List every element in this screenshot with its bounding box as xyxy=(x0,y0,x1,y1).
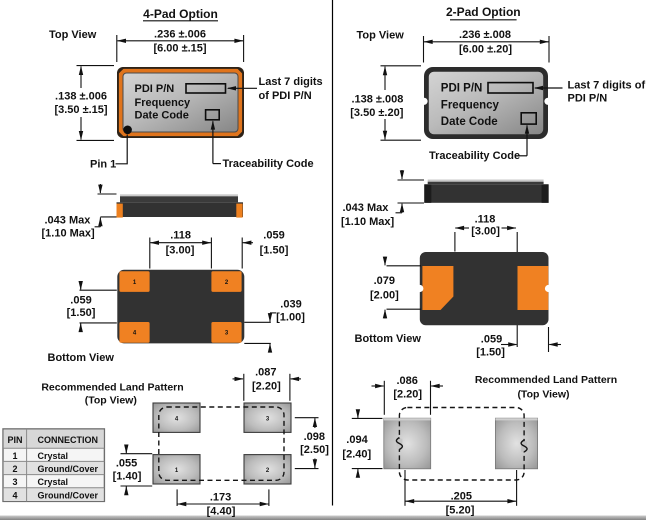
svg-text:Ground/Cover: Ground/Cover xyxy=(38,464,99,474)
svg-text:PIN: PIN xyxy=(7,435,22,445)
svg-text:.098: .098 xyxy=(304,431,325,443)
svg-text:[1.10 Max]: [1.10 Max] xyxy=(42,227,96,239)
svg-text:4-Pad Option: 4-Pad Option xyxy=(143,7,218,21)
svg-text:[1.50]: [1.50] xyxy=(260,244,289,256)
svg-text:.094: .094 xyxy=(346,434,368,446)
svg-text:2: 2 xyxy=(12,464,17,474)
svg-text:1: 1 xyxy=(12,451,17,461)
svg-text:4: 4 xyxy=(12,490,17,500)
svg-text:[1.00]: [1.00] xyxy=(276,312,305,324)
svg-text:[1.50]: [1.50] xyxy=(476,347,505,359)
svg-text:.059: .059 xyxy=(263,229,284,241)
svg-text:[1.40]: [1.40] xyxy=(113,471,142,483)
svg-text:Date Code: Date Code xyxy=(135,110,189,122)
svg-text:CONNECTION: CONNECTION xyxy=(38,435,99,445)
svg-text:[4.40]: [4.40] xyxy=(207,506,236,518)
svg-text:Bottom View: Bottom View xyxy=(355,333,422,345)
svg-text:Top View: Top View xyxy=(357,30,405,42)
svg-text:Recommended Land Pattern: Recommended Land Pattern xyxy=(475,374,617,386)
svg-text:[2.20]: [2.20] xyxy=(252,381,281,393)
svg-text:Crystal: Crystal xyxy=(38,451,69,461)
svg-text:[2.50]: [2.50] xyxy=(300,444,329,456)
svg-text:.236 ±.006: .236 ±.006 xyxy=(154,29,206,41)
svg-text:.086: .086 xyxy=(396,375,417,387)
svg-text:(Top View): (Top View) xyxy=(85,394,137,406)
svg-text:.118: .118 xyxy=(170,229,191,241)
svg-text:.055: .055 xyxy=(116,458,137,470)
svg-text:[3.50 ±.20]: [3.50 ±.20] xyxy=(350,107,403,119)
svg-text:.138 ±.008: .138 ±.008 xyxy=(351,93,403,105)
svg-text:PDI P/N: PDI P/N xyxy=(441,82,483,94)
svg-text:Ground/Cover: Ground/Cover xyxy=(38,490,99,500)
svg-text:3: 3 xyxy=(12,477,17,487)
svg-text:.138 ±.006: .138 ±.006 xyxy=(55,90,107,102)
svg-text:of PDI P/N: of PDI P/N xyxy=(259,90,312,102)
svg-text:Bottom View: Bottom View xyxy=(48,352,115,364)
svg-text:Recommended Land Pattern: Recommended Land Pattern xyxy=(41,381,183,393)
svg-text:[2.40]: [2.40] xyxy=(342,448,371,460)
svg-text:.043 Max: .043 Max xyxy=(45,214,92,226)
svg-text:.236 ±.008: .236 ±.008 xyxy=(459,29,511,41)
svg-text:Frequency: Frequency xyxy=(135,97,192,109)
svg-text:Last 7 digits of: Last 7 digits of xyxy=(568,79,646,91)
svg-text:.118: .118 xyxy=(475,214,496,226)
svg-text:.059: .059 xyxy=(481,334,502,346)
svg-text:[3.00]: [3.00] xyxy=(166,244,195,256)
svg-text:Crystal: Crystal xyxy=(38,477,69,487)
svg-text:[3.50 ±.15]: [3.50 ±.15] xyxy=(54,104,107,116)
svg-text:.039: .039 xyxy=(280,298,301,310)
svg-text:[1.10 Max]: [1.10 Max] xyxy=(341,216,395,228)
svg-text:[5.20]: [5.20] xyxy=(446,504,475,516)
svg-text:[6.00 ±.20]: [6.00 ±.20] xyxy=(459,43,512,55)
svg-text:Date Code: Date Code xyxy=(441,116,498,128)
svg-text:.059: .059 xyxy=(70,294,91,306)
svg-text:PDI P/N: PDI P/N xyxy=(568,92,608,104)
svg-text:[6.00 ±.15]: [6.00 ±.15] xyxy=(153,43,206,55)
svg-text:[3.00]: [3.00] xyxy=(471,225,500,237)
svg-text:.173: .173 xyxy=(210,491,231,503)
svg-text:.079: .079 xyxy=(374,275,395,287)
svg-text:Frequency: Frequency xyxy=(441,99,500,111)
svg-text:.087: .087 xyxy=(255,366,276,378)
svg-text:PDI P/N: PDI P/N xyxy=(135,83,175,95)
svg-text:(Top View): (Top View) xyxy=(517,388,569,400)
svg-text:Traceability Code: Traceability Code xyxy=(223,158,314,170)
svg-text:.043 Max: .043 Max xyxy=(343,202,390,214)
svg-text:2-Pad Option: 2-Pad Option xyxy=(446,5,521,19)
svg-text:Last 7 digits: Last 7 digits xyxy=(259,76,323,88)
svg-text:Top View: Top View xyxy=(49,29,97,41)
svg-text:[2.00]: [2.00] xyxy=(370,289,399,301)
svg-text:Traceability Code: Traceability Code xyxy=(429,150,520,162)
svg-text:[1.50]: [1.50] xyxy=(67,307,96,319)
svg-text:[2.20]: [2.20] xyxy=(393,388,422,400)
svg-text:Pin 1: Pin 1 xyxy=(90,159,116,171)
